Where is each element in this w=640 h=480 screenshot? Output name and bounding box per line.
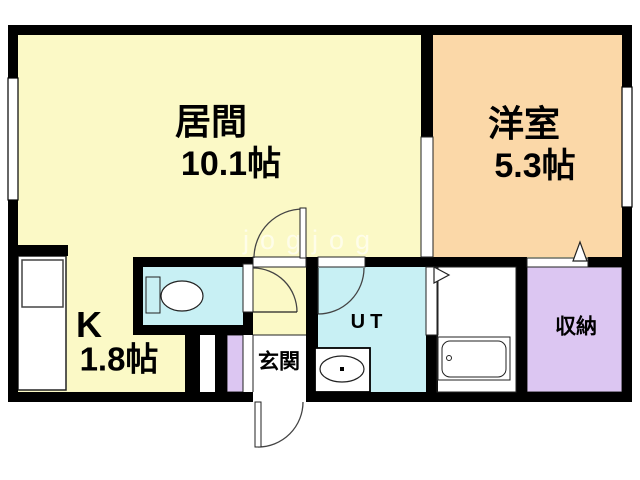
- wall-kitchen-side-1: [185, 335, 200, 392]
- wall-kitchen-stub: [18, 245, 68, 256]
- entrance-door-arc: [258, 402, 303, 447]
- floor-plan: jogjog: [0, 0, 640, 480]
- wall-mid-1: [365, 257, 433, 267]
- wall-bottom: [8, 392, 632, 402]
- kitchen-sink-icon: [22, 260, 63, 307]
- closet-label: 収納: [555, 317, 597, 338]
- utility-room-label: UT: [351, 312, 388, 332]
- window-right: [622, 87, 632, 207]
- wall-mid-3: [588, 257, 622, 267]
- pipe-space-floor: [200, 335, 215, 392]
- western-room-floor: [433, 35, 622, 257]
- entrance-label: 玄関: [258, 352, 300, 373]
- entrance-door-opening: [253, 392, 306, 402]
- hall-door-opening: [253, 257, 306, 267]
- kitchen-counter-icon: [18, 256, 66, 390]
- window-left: [8, 78, 18, 200]
- wall-bath-closet: [516, 257, 527, 392]
- wall-right: [622, 25, 632, 402]
- kitchen-size: 1.8帖: [80, 343, 159, 376]
- toilet-door-opening: [243, 264, 253, 312]
- room-floors: [18, 35, 622, 392]
- wall-kitchen-side-2: [215, 335, 227, 392]
- entrance-door-leaf: [255, 402, 261, 447]
- wall-mid-2: [433, 257, 527, 267]
- wash-basin-faucet-icon: [340, 367, 344, 371]
- shoe-storage-floor: [227, 335, 243, 392]
- kitchen-label: K: [76, 307, 102, 343]
- utility-door-opening: [318, 257, 365, 267]
- wall-living-western: [421, 35, 433, 137]
- toilet-room: [133, 257, 253, 335]
- living-western-opening: [421, 137, 433, 257]
- western-room-size: 5.3帖: [494, 149, 575, 183]
- living-room-size: 10.1帖: [181, 147, 281, 181]
- floor-plan-drawing: jogjog: [0, 0, 640, 480]
- wall-top: [8, 25, 632, 35]
- toilet-bowl-icon: [161, 281, 203, 311]
- western-room-label: 洋室: [488, 106, 560, 142]
- wash-basin: [315, 348, 370, 392]
- living-door-leaf: [300, 208, 306, 258]
- living-room-label: 居間: [175, 104, 247, 140]
